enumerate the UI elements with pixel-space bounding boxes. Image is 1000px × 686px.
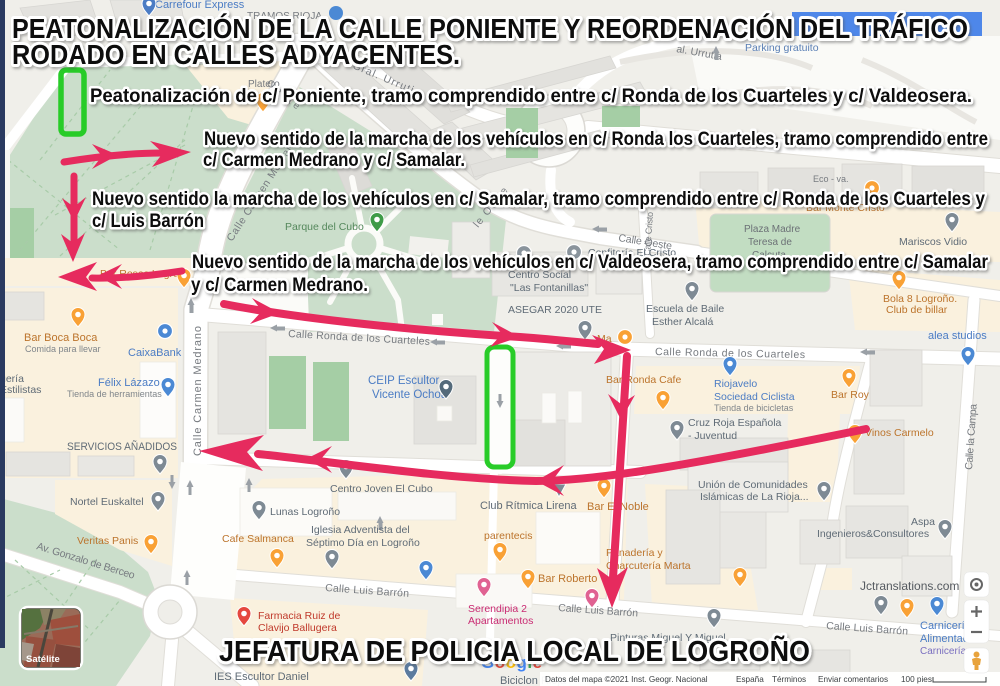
svg-text:Aspa: Aspa	[911, 516, 935, 528]
svg-text:Eco - va.: Eco - va.	[813, 174, 849, 184]
svg-text:y c/ Carmen Medrano.: y c/ Carmen Medrano.	[191, 275, 368, 296]
svg-text:Séptimo Día en Logroño: Séptimo Día en Logroño	[306, 537, 420, 549]
svg-text:Farmacia Ruiz de: Farmacia Ruiz de	[258, 610, 340, 622]
svg-text:100 pies: 100 pies	[901, 675, 932, 684]
svg-text:Nortel Euskaltel: Nortel Euskaltel	[70, 496, 144, 508]
svg-text:Vinos Carmelo: Vinos Carmelo	[865, 427, 934, 439]
svg-text:Lunas Logroño: Lunas Logroño	[270, 506, 340, 518]
svg-text:Charcutería Marta: Charcutería Marta	[606, 560, 691, 572]
svg-text:Carnicería: Carnicería	[920, 646, 967, 657]
svg-text:Escuela de Baile: Escuela de Baile	[646, 303, 724, 315]
svg-text:CaixaBank: CaixaBank	[128, 347, 182, 359]
svg-text:Bar Roy: Bar Roy	[831, 389, 870, 401]
svg-text:Bar Roberto: Bar Roberto	[538, 573, 597, 585]
svg-text:Centro Joven El Cubo: Centro Joven El Cubo	[330, 483, 433, 495]
svg-text:Peatonalización de c/ Poniente: Peatonalización de c/ Poniente, tramo co…	[90, 86, 972, 107]
svg-text:Iglesia Adventista del: Iglesia Adventista del	[311, 524, 410, 536]
svg-text:parentecis: parentecis	[484, 530, 532, 542]
svg-text:Club Rítmica Lirena: Club Rítmica Lirena	[480, 500, 577, 512]
svg-text:Carrefour Express: Carrefour Express	[155, 0, 245, 11]
svg-text:Unión de Comunidades: Unión de Comunidades	[698, 479, 808, 491]
svg-text:Serendipia 2: Serendipia 2	[468, 603, 527, 615]
svg-text:Jctranslations.com: Jctranslations.com	[860, 579, 959, 593]
svg-text:Parque del Cubo: Parque del Cubo	[285, 221, 364, 233]
svg-text:Ingenieros&Consultores: Ingenieros&Consultores	[817, 528, 929, 540]
svg-text:Félix Lázazo: Félix Lázazo	[98, 377, 160, 389]
svg-text:RODADO EN CALLES ADYACENTES.: RODADO EN CALLES ADYACENTES.	[12, 39, 460, 70]
svg-text:Cafe Salmanca: Cafe Salmanca	[222, 533, 294, 545]
svg-text:JEFATURA DE POLICIA LOCAL DE L: JEFATURA DE POLICIA LOCAL DE LOGROÑO	[219, 636, 810, 668]
svg-text:Tienda de bicicletas: Tienda de bicicletas	[714, 403, 794, 413]
svg-text:Nuevo sentido la marcha de los: Nuevo sentido la marcha de los vehículos…	[92, 189, 985, 210]
svg-text:Comida para llevar: Comida para llevar	[25, 344, 101, 354]
svg-text:Vicente Ochoa: Vicente Ochoa	[372, 389, 448, 401]
svg-text:Nuevo sentido de la marcha de: Nuevo sentido de la marcha de los vehícu…	[204, 129, 988, 150]
svg-text:Enviar comentarios: Enviar comentarios	[818, 675, 888, 684]
svg-text:IES Escultor Daniel: IES Escultor Daniel	[214, 671, 309, 683]
svg-text:Bar Ronda Cafe: Bar Ronda Cafe	[606, 374, 681, 386]
svg-text:Plaza Madre: Plaza Madre	[744, 224, 801, 235]
svg-text:Satélite: Satélite	[26, 654, 60, 665]
svg-text:Veritas Panis: Veritas Panis	[77, 535, 138, 547]
svg-text:ASEGAR 2020 UTE: ASEGAR 2020 UTE	[508, 304, 602, 316]
svg-text:Apartamentos: Apartamentos	[468, 615, 533, 627]
svg-text:Nuevo sentido de la marcha de: Nuevo sentido de la marcha de los vehícu…	[192, 252, 989, 273]
svg-text:Estilistas: Estilistas	[0, 384, 41, 396]
svg-text:Riojavelo: Riojavelo	[714, 378, 757, 390]
svg-text:Islámicas de La Rioja...: Islámicas de La Rioja...	[700, 491, 809, 503]
svg-text:Términos: Términos	[772, 675, 806, 684]
svg-text:Mariscos Vidio: Mariscos Vidio	[899, 236, 967, 248]
svg-text:Teresa de: Teresa de	[748, 237, 792, 248]
svg-text:Tienda de herramientas: Tienda de herramientas	[67, 389, 162, 399]
svg-text:CEIP Escultor: CEIP Escultor	[368, 375, 440, 387]
svg-text:España: España	[736, 675, 764, 684]
svg-text:Clavijo Ballugera: Clavijo Ballugera	[258, 622, 337, 634]
svg-text:Club de billar: Club de billar	[886, 304, 948, 316]
svg-text:Cruz Roja Española: Cruz Roja Española	[688, 417, 782, 429]
svg-text:Sociedad Ciclista: Sociedad Ciclista	[714, 391, 795, 403]
svg-text:"Las Fontanillas": "Las Fontanillas"	[510, 282, 588, 294]
svg-text:c/ Luis Barrón: c/ Luis Barrón	[92, 211, 204, 232]
svg-text:c/ Carmen Medrano y c/ Samalar: c/ Carmen Medrano y c/ Samalar.	[203, 150, 465, 171]
svg-text:Bar Boca Boca: Bar Boca Boca	[24, 332, 98, 344]
svg-text:Calle Carmen Medrano: Calle Carmen Medrano	[192, 326, 204, 456]
svg-text:Esther Alcalá: Esther Alcalá	[652, 316, 713, 328]
svg-text:alea studios: alea studios	[928, 330, 987, 342]
svg-text:- Juventud: - Juventud	[688, 430, 737, 442]
svg-text:Datos del mapa ©2021 Inst. Geo: Datos del mapa ©2021 Inst. Geogr. Nacion…	[545, 675, 708, 684]
svg-text:SERVICIOS AÑADIDOS: SERVICIOS AÑADIDOS	[67, 440, 177, 453]
svg-text:Alimentac: Alimentac	[920, 633, 969, 645]
